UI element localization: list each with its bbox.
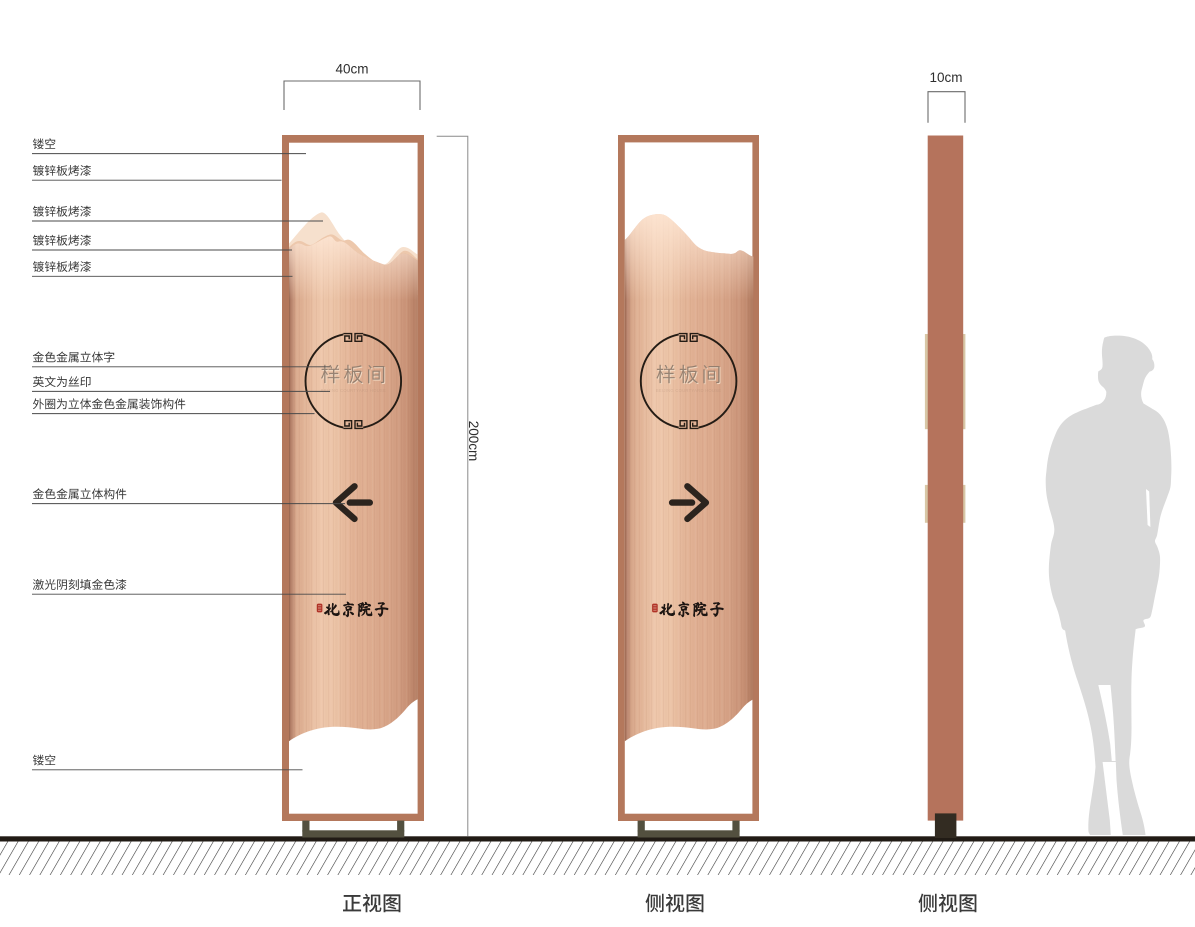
svg-text:40cm: 40cm bbox=[335, 62, 368, 77]
svg-text:10cm: 10cm bbox=[929, 70, 962, 85]
svg-text:BEIJING COURTYARD HOUSE: BEIJING COURTYARD HOUSE bbox=[656, 388, 721, 393]
svg-text:200cm: 200cm bbox=[466, 421, 481, 462]
svg-text:BEIJING COURTYARD HOUSE: BEIJING COURTYARD HOUSE bbox=[321, 388, 386, 393]
